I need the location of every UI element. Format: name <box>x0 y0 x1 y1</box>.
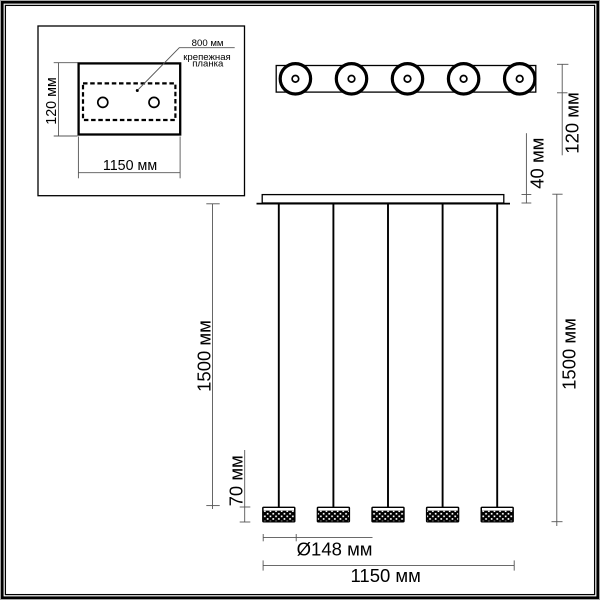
svg-text:1500 мм: 1500 мм <box>559 318 580 390</box>
svg-text:1150 мм: 1150 мм <box>351 565 421 586</box>
svg-text:120 мм: 120 мм <box>561 92 582 153</box>
svg-text:планка: планка <box>192 59 224 70</box>
svg-text:120 мм: 120 мм <box>44 77 60 124</box>
svg-text:70 мм: 70 мм <box>225 455 246 506</box>
svg-text:1150 мм: 1150 мм <box>103 158 157 174</box>
svg-text:1500 мм: 1500 мм <box>194 320 215 392</box>
svg-text:40 мм: 40 мм <box>527 138 548 189</box>
svg-text:Ø148 мм: Ø148 мм <box>297 538 373 559</box>
svg-text:800 мм: 800 мм <box>192 38 224 49</box>
